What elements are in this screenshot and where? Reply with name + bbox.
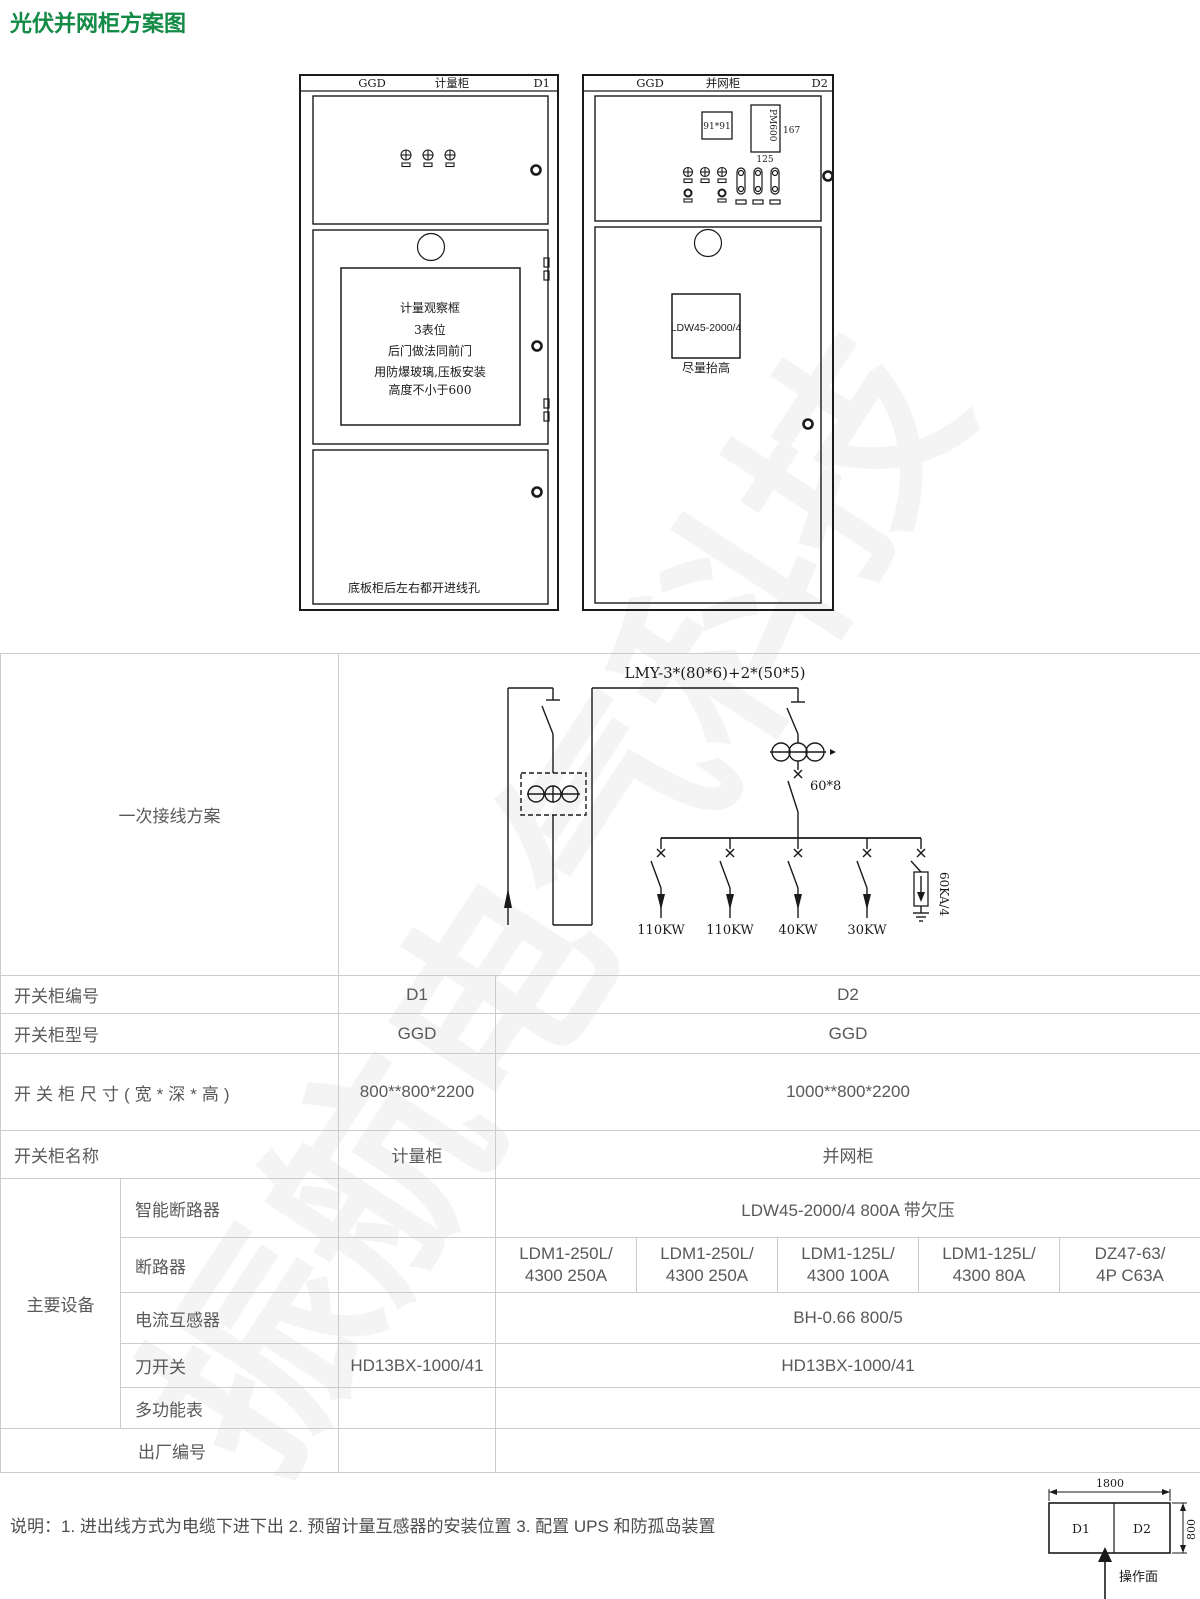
window-note-line: 计量观察框 [400, 301, 460, 315]
lock-knob-icon [804, 172, 833, 429]
meter-91x91-label: 91*91 [703, 122, 730, 132]
breaker-note: 尽量抬高 [682, 360, 730, 375]
lock-knob-icon [532, 166, 542, 497]
window-note-line: 后门做法同前门 [388, 343, 472, 358]
ct-d1 [339, 1293, 496, 1344]
indicator-meter-icon [401, 150, 455, 167]
layout-width-label: 1800 [1096, 1477, 1124, 1490]
wiring-diagram: LMY-3*(80*6)+2*(50*5) 60*8 110KW 110KW 4… [338, 653, 1200, 975]
multimeter-d2 [496, 1388, 1200, 1429]
smart-breaker-label: 智能断路器 [121, 1179, 339, 1238]
row-knife-switch: 刀开关 HD13BX-1000/41 HD13BX-1000/41 [1, 1344, 1200, 1388]
serial-d2 [496, 1429, 1200, 1473]
switch-handle-icon [736, 168, 780, 204]
right-cabinet [583, 75, 833, 610]
left-cabinet [300, 75, 558, 610]
load-label: 110KW [637, 923, 685, 938]
window-note-line: 高度不小于600 [389, 382, 472, 397]
load-label: 40KW [778, 923, 818, 938]
cabinet-name-label: 开关柜名称 [1, 1131, 339, 1179]
right-cabinet-model: GGD [636, 76, 664, 90]
left-cabinet-code: D1 [533, 76, 550, 90]
door-window-circle [695, 230, 722, 257]
load-branch [651, 838, 871, 918]
right-cabinet-name: 并网柜 [706, 76, 741, 90]
left-cabinet-bottom-note: 底板柜后左右都开进线孔 [348, 580, 480, 595]
cabinet-model-d1: GGD [339, 1014, 496, 1054]
cabinet-size-label: 开关柜尺寸(宽*深*高) [1, 1054, 339, 1131]
row-cabinet-name: 开关柜名称 计量柜 并网柜 [1, 1131, 1200, 1179]
left-cabinet-model: GGD [358, 76, 386, 90]
layout-cell-d1: D1 [1072, 1521, 1090, 1536]
multimeter-d1 [339, 1388, 496, 1429]
door-window-circle [418, 234, 445, 261]
dim-167: 167 [783, 126, 800, 136]
layout-depth-label: 800 [1185, 1519, 1198, 1540]
cabinet-size-d2: 1000**800*2200 [496, 1054, 1200, 1131]
cabinet-code-label: 开关柜编号 [1, 976, 339, 1014]
cabinet-size-d1: 800**800*2200 [339, 1054, 496, 1131]
load-label: 110KW [706, 923, 754, 938]
row-cabinet-code: 开关柜编号 D1 D2 [1, 976, 1200, 1014]
cabinet-code-d2: D2 [496, 976, 1200, 1014]
page-title: 光伏并网柜方案图 [10, 6, 186, 38]
cabinet-name-d1: 计量柜 [339, 1131, 496, 1179]
smart-breaker-d2: LDW45-2000/4 800A 带欠压 [496, 1179, 1200, 1238]
row-cabinet-model: 开关柜型号 GGD GGD [1, 1014, 1200, 1054]
operator-face-label: 操作面 [1119, 1569, 1158, 1585]
operator-face-arrow-icon [1098, 1547, 1112, 1562]
breaker-value: DZ47-63/ 4P C63A [1060, 1238, 1200, 1293]
window-note-line: 用防爆玻璃,压板安装 [374, 364, 486, 379]
breaker-d1 [339, 1238, 496, 1293]
breaker-value: LDM1-125L/ 4300 100A [778, 1238, 919, 1293]
window-note-line: 3表位 [414, 322, 446, 337]
serial-d1 [339, 1429, 496, 1473]
floor-layout-diagram: 1800 800 D1 D2 操作面 [1020, 1475, 1200, 1599]
surge-arrester [911, 838, 929, 921]
multimeter-label: 多功能表 [121, 1388, 339, 1429]
ct-d2: BH-0.66 800/5 [496, 1293, 1200, 1344]
serial-label: 出厂编号 [1, 1429, 339, 1473]
cabinet-drawings: GGD 计量柜 D1 计量观察框 3表位 后门做法同前门 用防爆玻璃,压板安装 … [0, 0, 1200, 650]
breaker-value: LDM1-250L/ 4300 250A [496, 1238, 637, 1293]
knife-switch-d1: HD13BX-1000/41 [339, 1344, 496, 1388]
row-multimeter: 多功能表 [1, 1388, 1200, 1429]
bus-label: LMY-3*(80*6)+2*(50*5) [625, 664, 806, 682]
equipment-label: 主要设备 [1, 1179, 121, 1429]
knife-switch-label: 刀开关 [121, 1344, 339, 1388]
layout-cell-d2: D2 [1133, 1521, 1151, 1536]
row-current-transformer: 电流互感器 BH-0.66 800/5 [1, 1293, 1200, 1344]
row-breaker: 断路器 LDM1-250L/ 4300 250A LDM1-250L/ 4300… [1, 1238, 1200, 1293]
breaker-value: LDM1-125L/ 4300 80A [919, 1238, 1060, 1293]
ct-label: 电流互感器 [121, 1293, 339, 1344]
indicator-lamp-icon [684, 190, 726, 203]
busbar-size-label: 60*8 [810, 779, 841, 794]
smart-breaker-d1 [339, 1179, 496, 1238]
dim-125: 125 [756, 155, 773, 165]
indicator-meter-icon [684, 168, 727, 183]
footer-note: 说明：1. 进出线方式为电缆下进下出 2. 预留计量互感器的安装位置 3. 配置… [10, 1512, 716, 1537]
ldw-breaker-label: LDW45-2000/4 [671, 322, 742, 334]
row-smart-breaker: 主要设备 智能断路器 LDW45-2000/4 800A 带欠压 [1, 1179, 1200, 1238]
pm600-label: PM600 [767, 109, 777, 142]
left-cabinet-name: 计量柜 [435, 76, 470, 90]
page: 光伏并网柜方案图 振航电气科技 [0, 0, 1200, 1599]
incoming-arrow-icon [504, 888, 512, 908]
breaker-value: LDM1-250L/ 4300 250A [637, 1238, 778, 1293]
cabinet-code-d1: D1 [339, 976, 496, 1014]
right-cabinet-code: D2 [811, 76, 828, 90]
row-cabinet-size: 开关柜尺寸(宽*深*高) 800**800*2200 1000**800*220… [1, 1054, 1200, 1131]
cabinet-model-d2: GGD [496, 1014, 1200, 1054]
row-serial: 出厂编号 [1, 1429, 1200, 1473]
wiring-scheme-label: 一次接线方案 [1, 654, 339, 976]
breaker-label: 断路器 [121, 1238, 339, 1293]
cabinet-name-d2: 并网柜 [496, 1131, 1200, 1179]
load-label: 30KW [847, 923, 887, 938]
arrester-label: 60KA/4 [937, 872, 951, 916]
cabinet-model-label: 开关柜型号 [1, 1014, 339, 1054]
knife-switch-d2: HD13BX-1000/41 [496, 1344, 1200, 1388]
